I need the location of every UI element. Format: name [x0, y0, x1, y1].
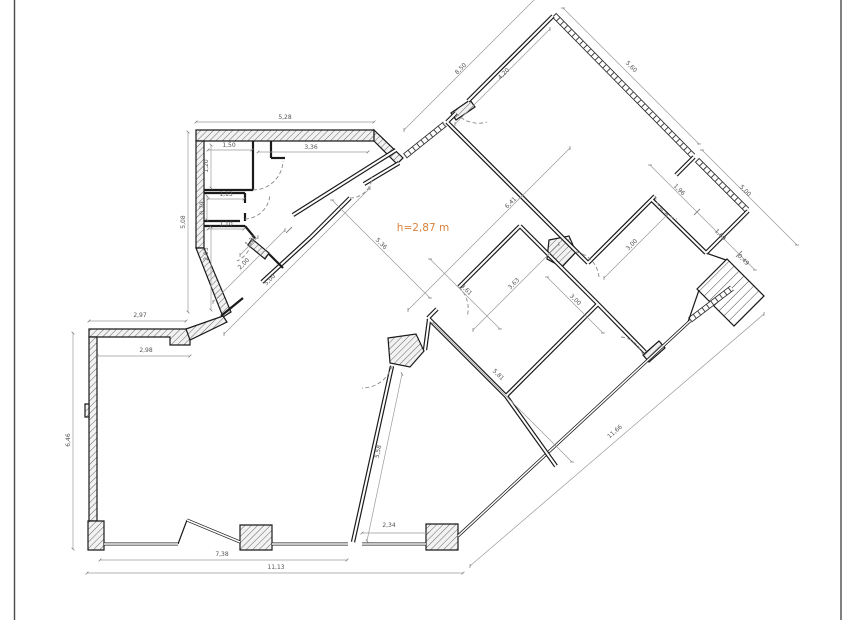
dimension-labels: 5,281,503,361,205,081,130,791,102,031,38… [65, 60, 752, 571]
dimension-label: 5,28 [278, 114, 292, 121]
dimension-label: 5,58 [374, 444, 384, 459]
dimension-label: 5,00 [738, 184, 753, 199]
dimension-label: 2,03 [203, 247, 210, 261]
dimension-label: 6,46 [65, 433, 72, 447]
dimension-label: 5,60 [624, 60, 639, 75]
dimension-label: 1,13 [219, 191, 233, 198]
dimension-label: 2,98 [139, 347, 153, 354]
dimension-label: 11,66 [606, 423, 624, 440]
dimension-label: 1,20 [203, 159, 210, 173]
ceiling-height-label: h=2,87 m [397, 222, 449, 234]
dimension-label: 0,49 [736, 253, 751, 268]
floor-plan-canvas: 5,281,503,361,205,081,130,791,102,031,38… [0, 0, 850, 620]
floor-plan-drawing: 5,281,503,361,205,081,130,791,102,031,38… [0, 0, 850, 620]
dimension-label: 1,96 [672, 183, 687, 198]
dimension-label: 7,38 [215, 551, 229, 558]
dimension-label: 3,36 [304, 144, 318, 151]
dimension-label: 2,34 [382, 522, 396, 529]
dimension-label: 2,00 [237, 257, 252, 272]
dimension-label: 5,08 [180, 215, 187, 229]
exterior-walls [85, 100, 764, 550]
windows [405, 15, 747, 320]
dimension-label: 0,79 [199, 201, 206, 215]
dimension-label: 2,97 [133, 312, 147, 319]
dimension-label: 6,41 [504, 196, 519, 211]
glass-walls [104, 253, 726, 544]
dimension-label: 5,00 [263, 273, 278, 288]
central-pillar [388, 334, 424, 367]
interior-walls [262, 16, 748, 542]
column-1 [240, 525, 272, 550]
dimension-label: 1,50 [222, 142, 236, 149]
dimension-label: 1,10 [219, 221, 233, 228]
column-2 [426, 524, 458, 550]
dimension-label: 8,50 [454, 62, 469, 77]
dimension-label: 11,13 [267, 564, 284, 571]
dimension-lines [73, 0, 797, 573]
door-leaf [643, 341, 665, 362]
